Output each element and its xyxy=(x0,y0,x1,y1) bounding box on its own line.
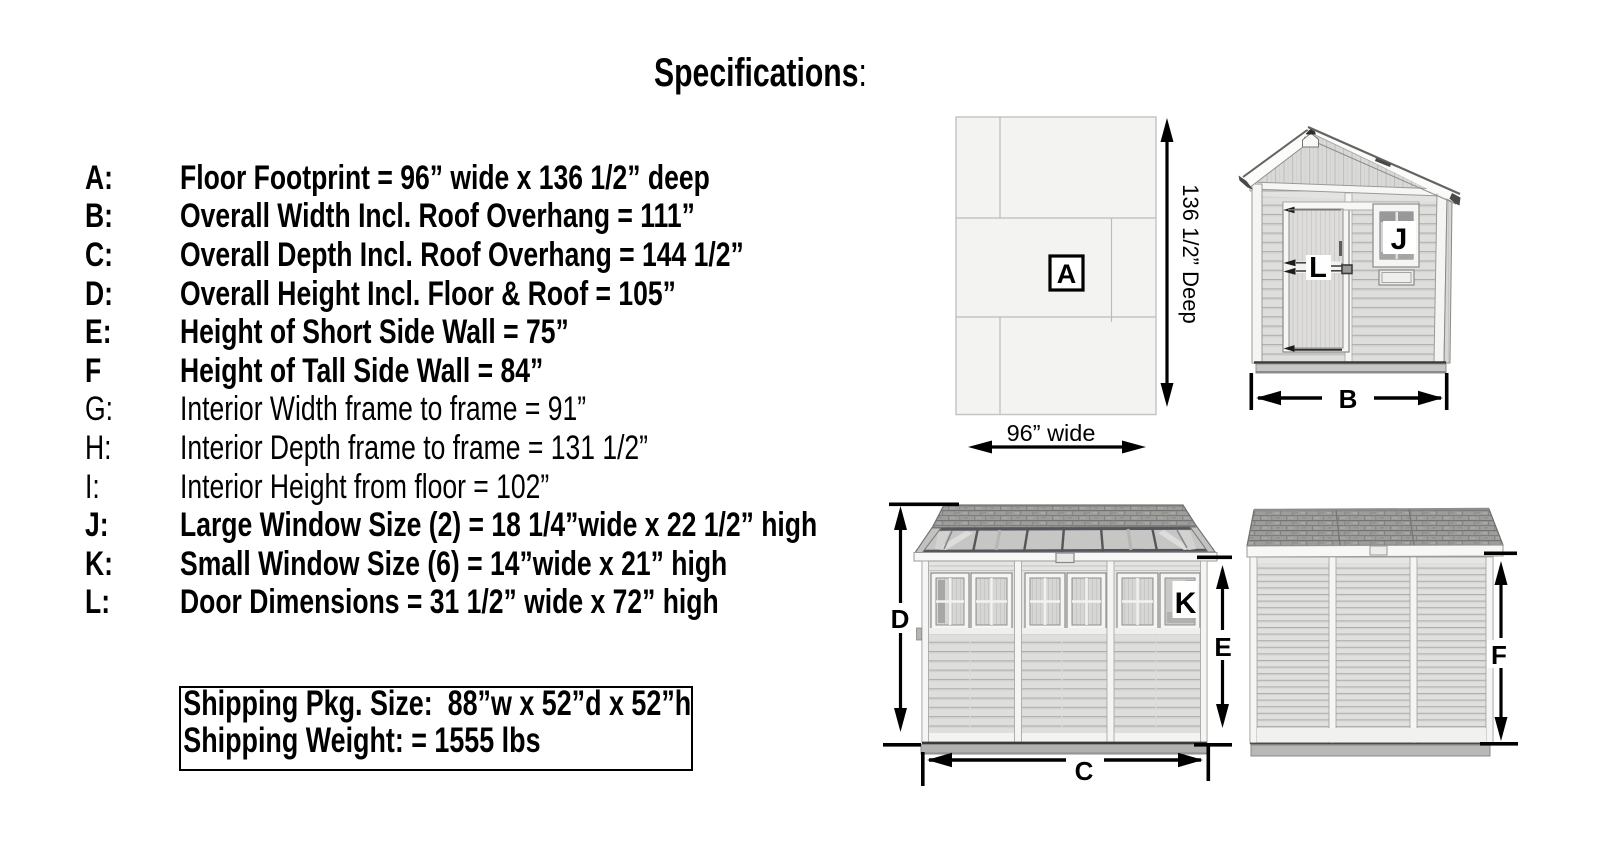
svg-text:D: D xyxy=(891,604,910,634)
svg-text:L: L xyxy=(1309,252,1327,284)
svg-text:136 1/2” Deep: 136 1/2” Deep xyxy=(1178,184,1203,323)
svg-text:A: A xyxy=(1057,259,1077,289)
svg-text:E: E xyxy=(1214,632,1231,662)
svg-text:F: F xyxy=(1491,640,1507,670)
svg-text:96” wide: 96” wide xyxy=(1007,420,1096,446)
svg-text:K: K xyxy=(1175,587,1197,620)
svg-text:B: B xyxy=(1339,384,1358,414)
svg-text:J: J xyxy=(1391,223,1408,256)
svg-text:C: C xyxy=(1075,756,1094,786)
